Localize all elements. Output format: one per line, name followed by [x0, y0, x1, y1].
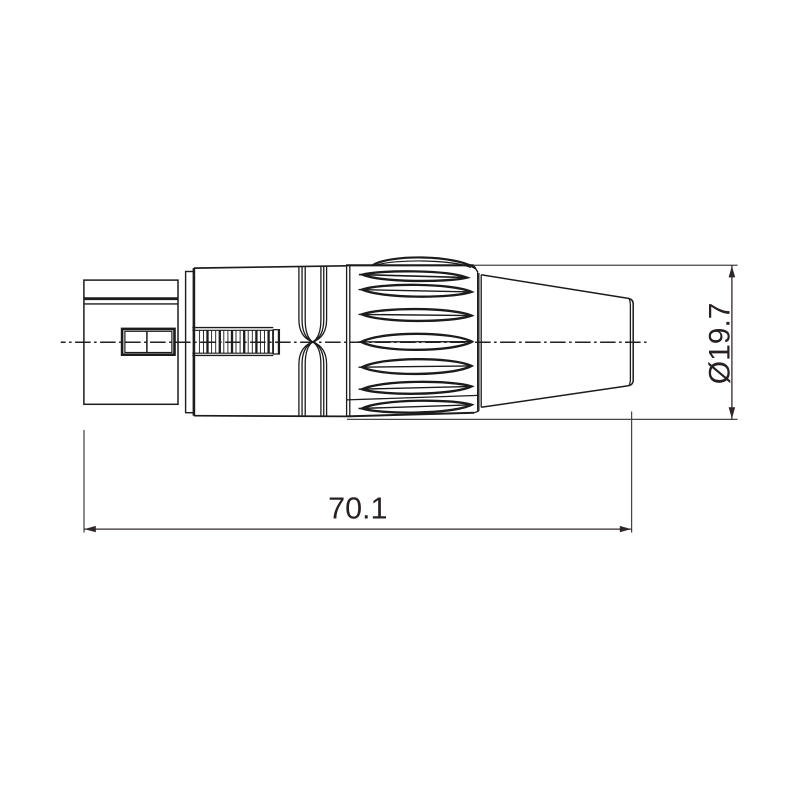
- svg-text:70.1: 70.1: [328, 491, 387, 525]
- svg-text:Ø19.7: Ø19.7: [704, 303, 737, 385]
